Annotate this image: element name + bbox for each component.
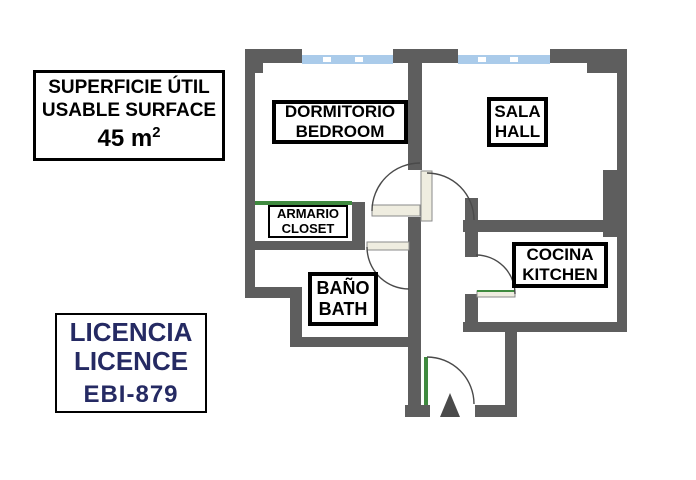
closet-label-en: CLOSET bbox=[270, 222, 346, 237]
bedroom-label-en: BEDROOM bbox=[276, 122, 404, 142]
window-glass-hall bbox=[458, 55, 550, 64]
door-arcs-layer bbox=[367, 163, 515, 404]
wall-bath-bottom bbox=[292, 337, 420, 347]
window-tick bbox=[478, 57, 486, 62]
wall-right-thick bbox=[603, 170, 627, 237]
window-tick bbox=[355, 57, 363, 62]
kitchen-door-leaf-edge bbox=[477, 290, 515, 292]
kitchen-label-en: KITCHEN bbox=[516, 265, 604, 285]
wall-closet-bottom bbox=[245, 241, 365, 250]
door-leaves-layer bbox=[367, 171, 515, 297]
closet-label-es: ARMARIO bbox=[270, 207, 346, 222]
entrance-arrow-icon bbox=[440, 393, 460, 417]
bath-door-leaf bbox=[367, 242, 409, 250]
wall-closet-right bbox=[352, 202, 365, 250]
wall-right-upper bbox=[617, 63, 627, 170]
kitchen-label-es: COCINA bbox=[516, 245, 604, 265]
hall-label-es: SALA bbox=[491, 102, 544, 122]
bedroom-door-arc bbox=[372, 163, 420, 211]
bedroom-door-leaf bbox=[372, 205, 420, 216]
wall-vestibule-right bbox=[505, 332, 517, 417]
bath-label-en: BATH bbox=[312, 299, 374, 320]
wall-hall-kitchen bbox=[463, 220, 603, 232]
room-label-hall: SALA HALL bbox=[487, 97, 548, 147]
window-frame-hall bbox=[458, 49, 550, 55]
wall-bottom-right-stub bbox=[475, 405, 517, 417]
bedroom-label-es: DORMITORIO bbox=[276, 102, 404, 122]
wall-bottom-left-stub bbox=[405, 405, 430, 417]
hall-door-leaf bbox=[421, 171, 432, 221]
wall-central-upper bbox=[408, 73, 422, 170]
entrance-door-leaf bbox=[424, 357, 428, 405]
wall-central-lower bbox=[408, 217, 421, 417]
wall-kitchen-bottom bbox=[463, 322, 627, 332]
wall-right-lower bbox=[617, 237, 627, 332]
floor-plan-drawing bbox=[0, 0, 696, 480]
room-label-kitchen: COCINA KITCHEN bbox=[512, 242, 608, 288]
floorplan-page: SUPERFICIE ÚTIL USABLE SURFACE 45 m2 LIC… bbox=[0, 0, 696, 480]
window-tick bbox=[510, 57, 518, 62]
hall-label-en: HALL bbox=[491, 122, 544, 142]
room-label-closet: ARMARIO CLOSET bbox=[268, 205, 348, 238]
room-label-bath: BAÑO BATH bbox=[308, 272, 378, 326]
bath-label-es: BAÑO bbox=[312, 278, 374, 299]
window-glass-bedroom bbox=[302, 55, 393, 64]
wall-pad-top-center bbox=[408, 49, 422, 73]
wall-left bbox=[245, 63, 255, 297]
window-frame-bedroom bbox=[302, 49, 393, 55]
room-label-bedroom: DORMITORIO BEDROOM bbox=[272, 100, 408, 144]
wall-top-segment-b bbox=[393, 49, 458, 63]
window-tick bbox=[323, 57, 331, 62]
wall-kitchen-left-lower bbox=[465, 294, 478, 322]
kitchen-door-arc bbox=[476, 255, 515, 294]
